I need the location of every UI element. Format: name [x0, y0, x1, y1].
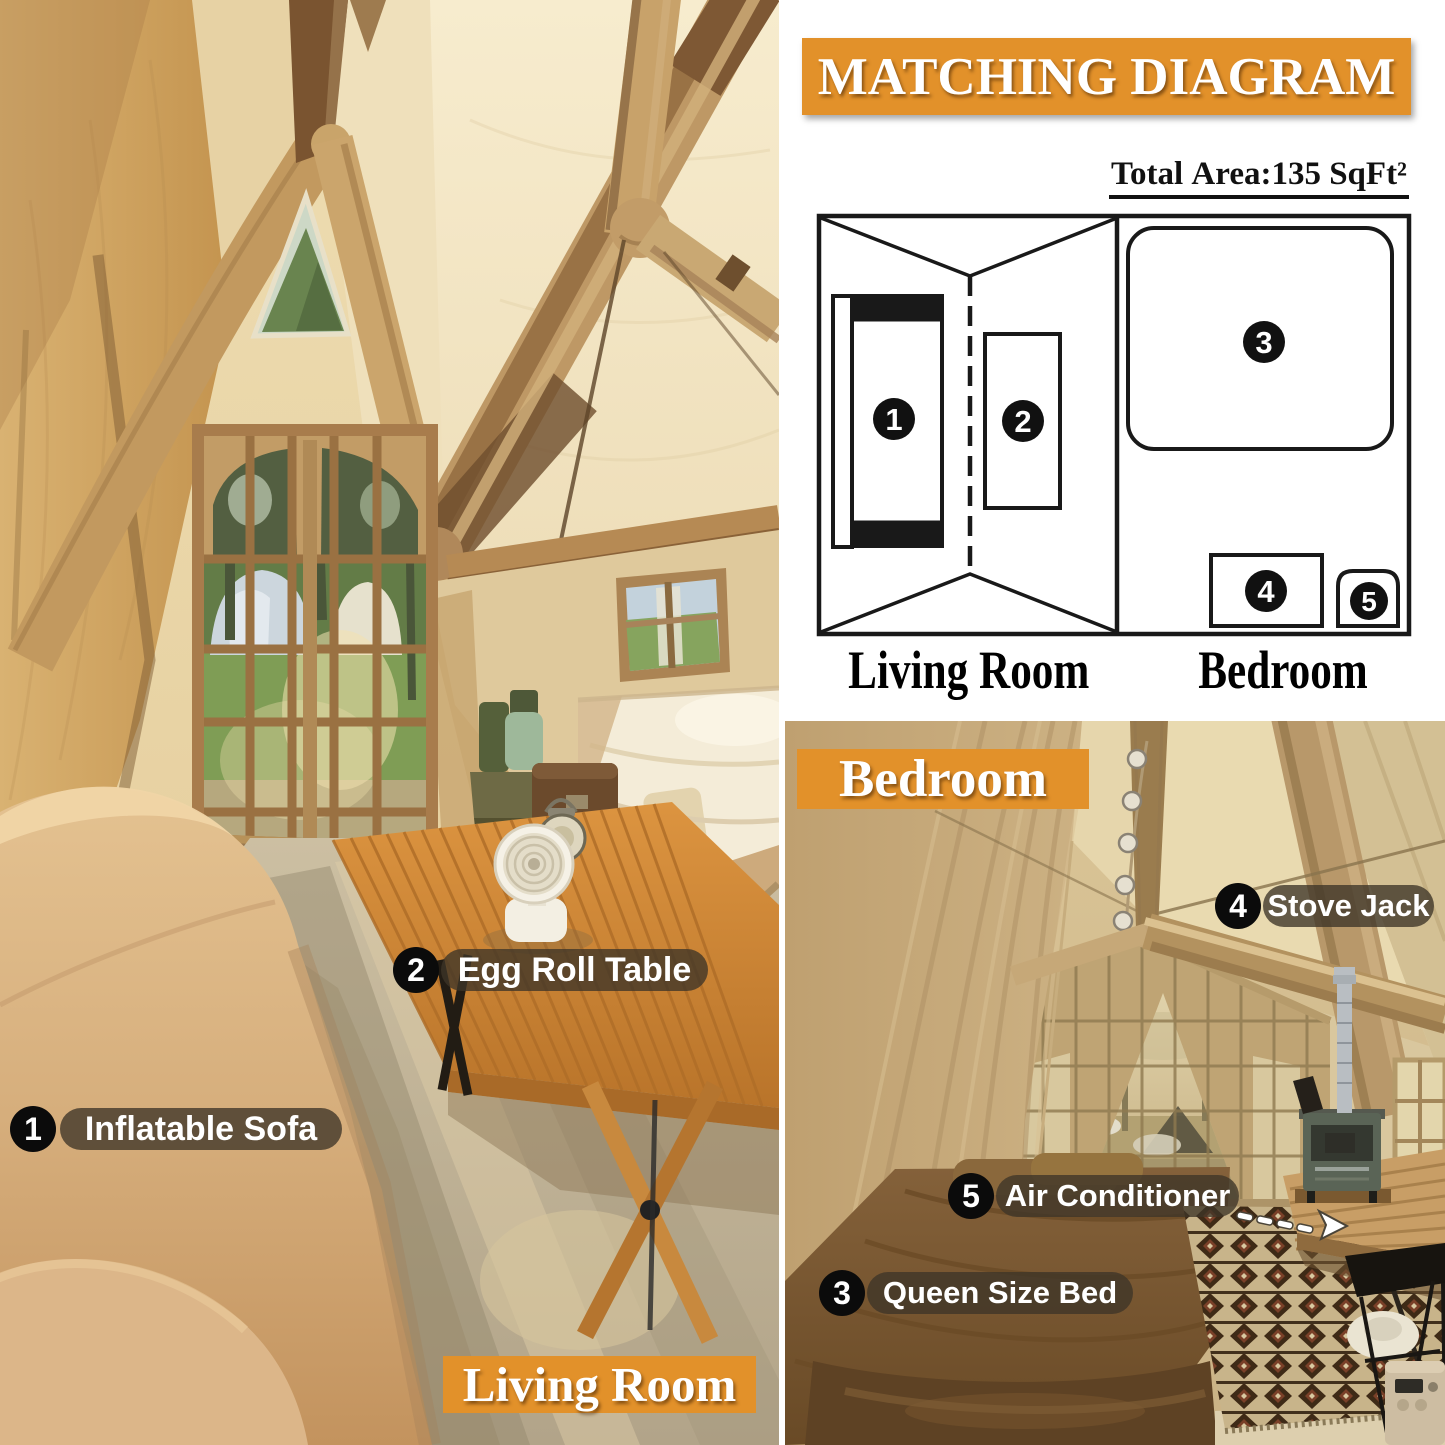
svg-text:3: 3: [1255, 325, 1272, 360]
svg-text:4: 4: [1257, 574, 1275, 609]
svg-text:1: 1: [885, 402, 902, 437]
svg-text:2: 2: [1014, 404, 1031, 439]
svg-text:5: 5: [1361, 586, 1377, 617]
